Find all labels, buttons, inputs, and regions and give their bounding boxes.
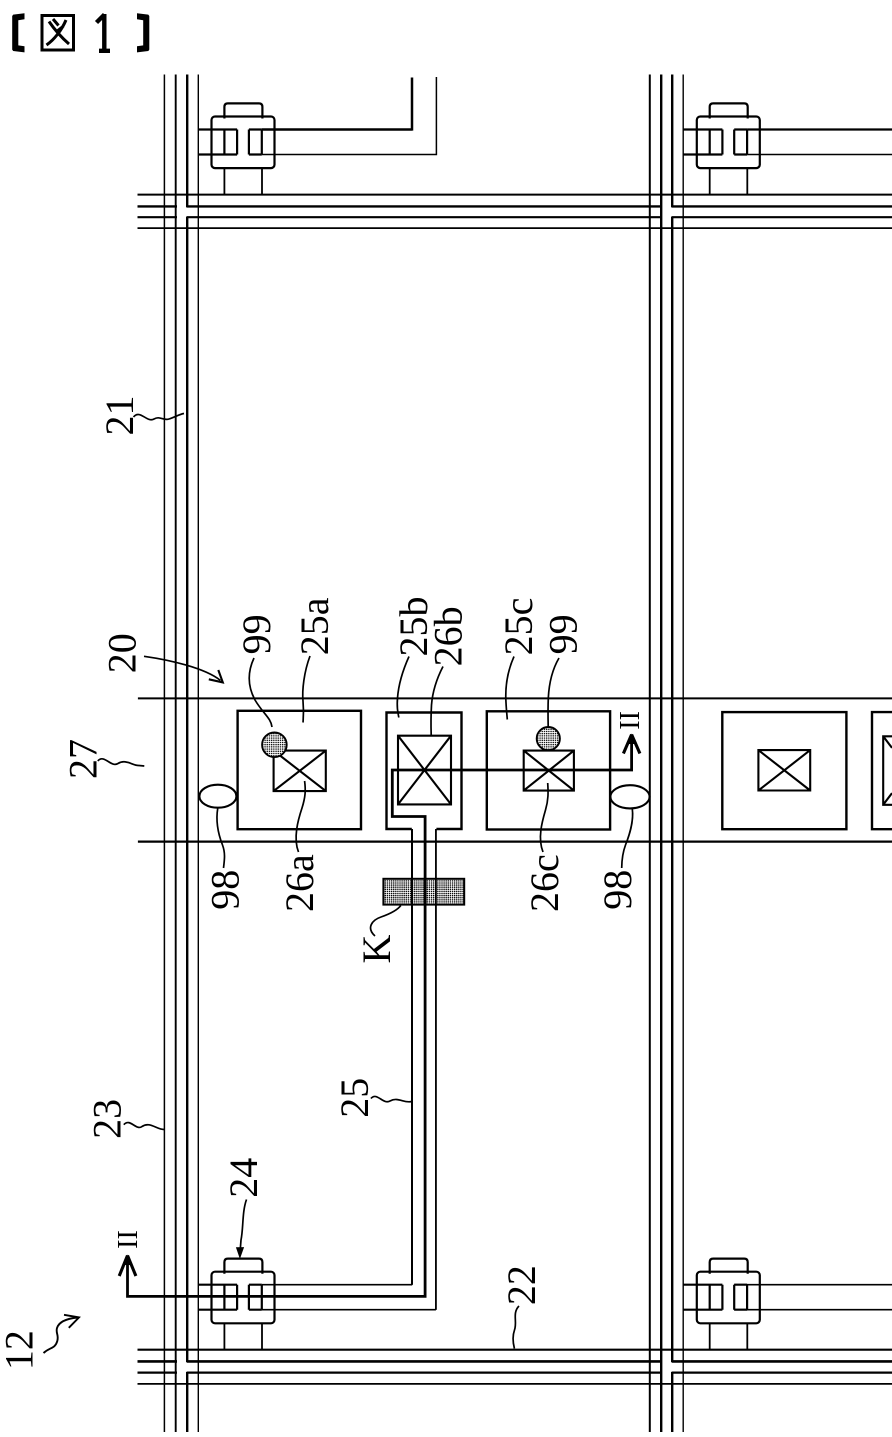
svg-text:23: 23 xyxy=(85,1099,130,1139)
svg-text:II: II xyxy=(615,711,646,730)
svg-text:99: 99 xyxy=(234,614,279,654)
svg-text:25a: 25a xyxy=(292,597,337,655)
svg-text:25c: 25c xyxy=(496,598,541,656)
svg-text:24: 24 xyxy=(221,1158,266,1198)
svg-text:22: 22 xyxy=(499,1265,544,1305)
svg-text:26b: 26b xyxy=(425,606,470,666)
svg-text:12: 12 xyxy=(0,1330,42,1370)
svg-text:25: 25 xyxy=(332,1078,377,1118)
svg-text:26c: 26c xyxy=(522,854,567,912)
svg-text:98: 98 xyxy=(595,870,640,910)
svg-text:II: II xyxy=(113,1230,144,1249)
svg-text:99: 99 xyxy=(540,614,585,654)
svg-text:21: 21 xyxy=(97,396,142,436)
svg-text:20: 20 xyxy=(99,633,144,673)
svg-text:26a: 26a xyxy=(277,854,322,912)
svg-text:98: 98 xyxy=(203,870,248,910)
svg-text:K: K xyxy=(354,934,399,963)
svg-text:27: 27 xyxy=(61,739,106,779)
